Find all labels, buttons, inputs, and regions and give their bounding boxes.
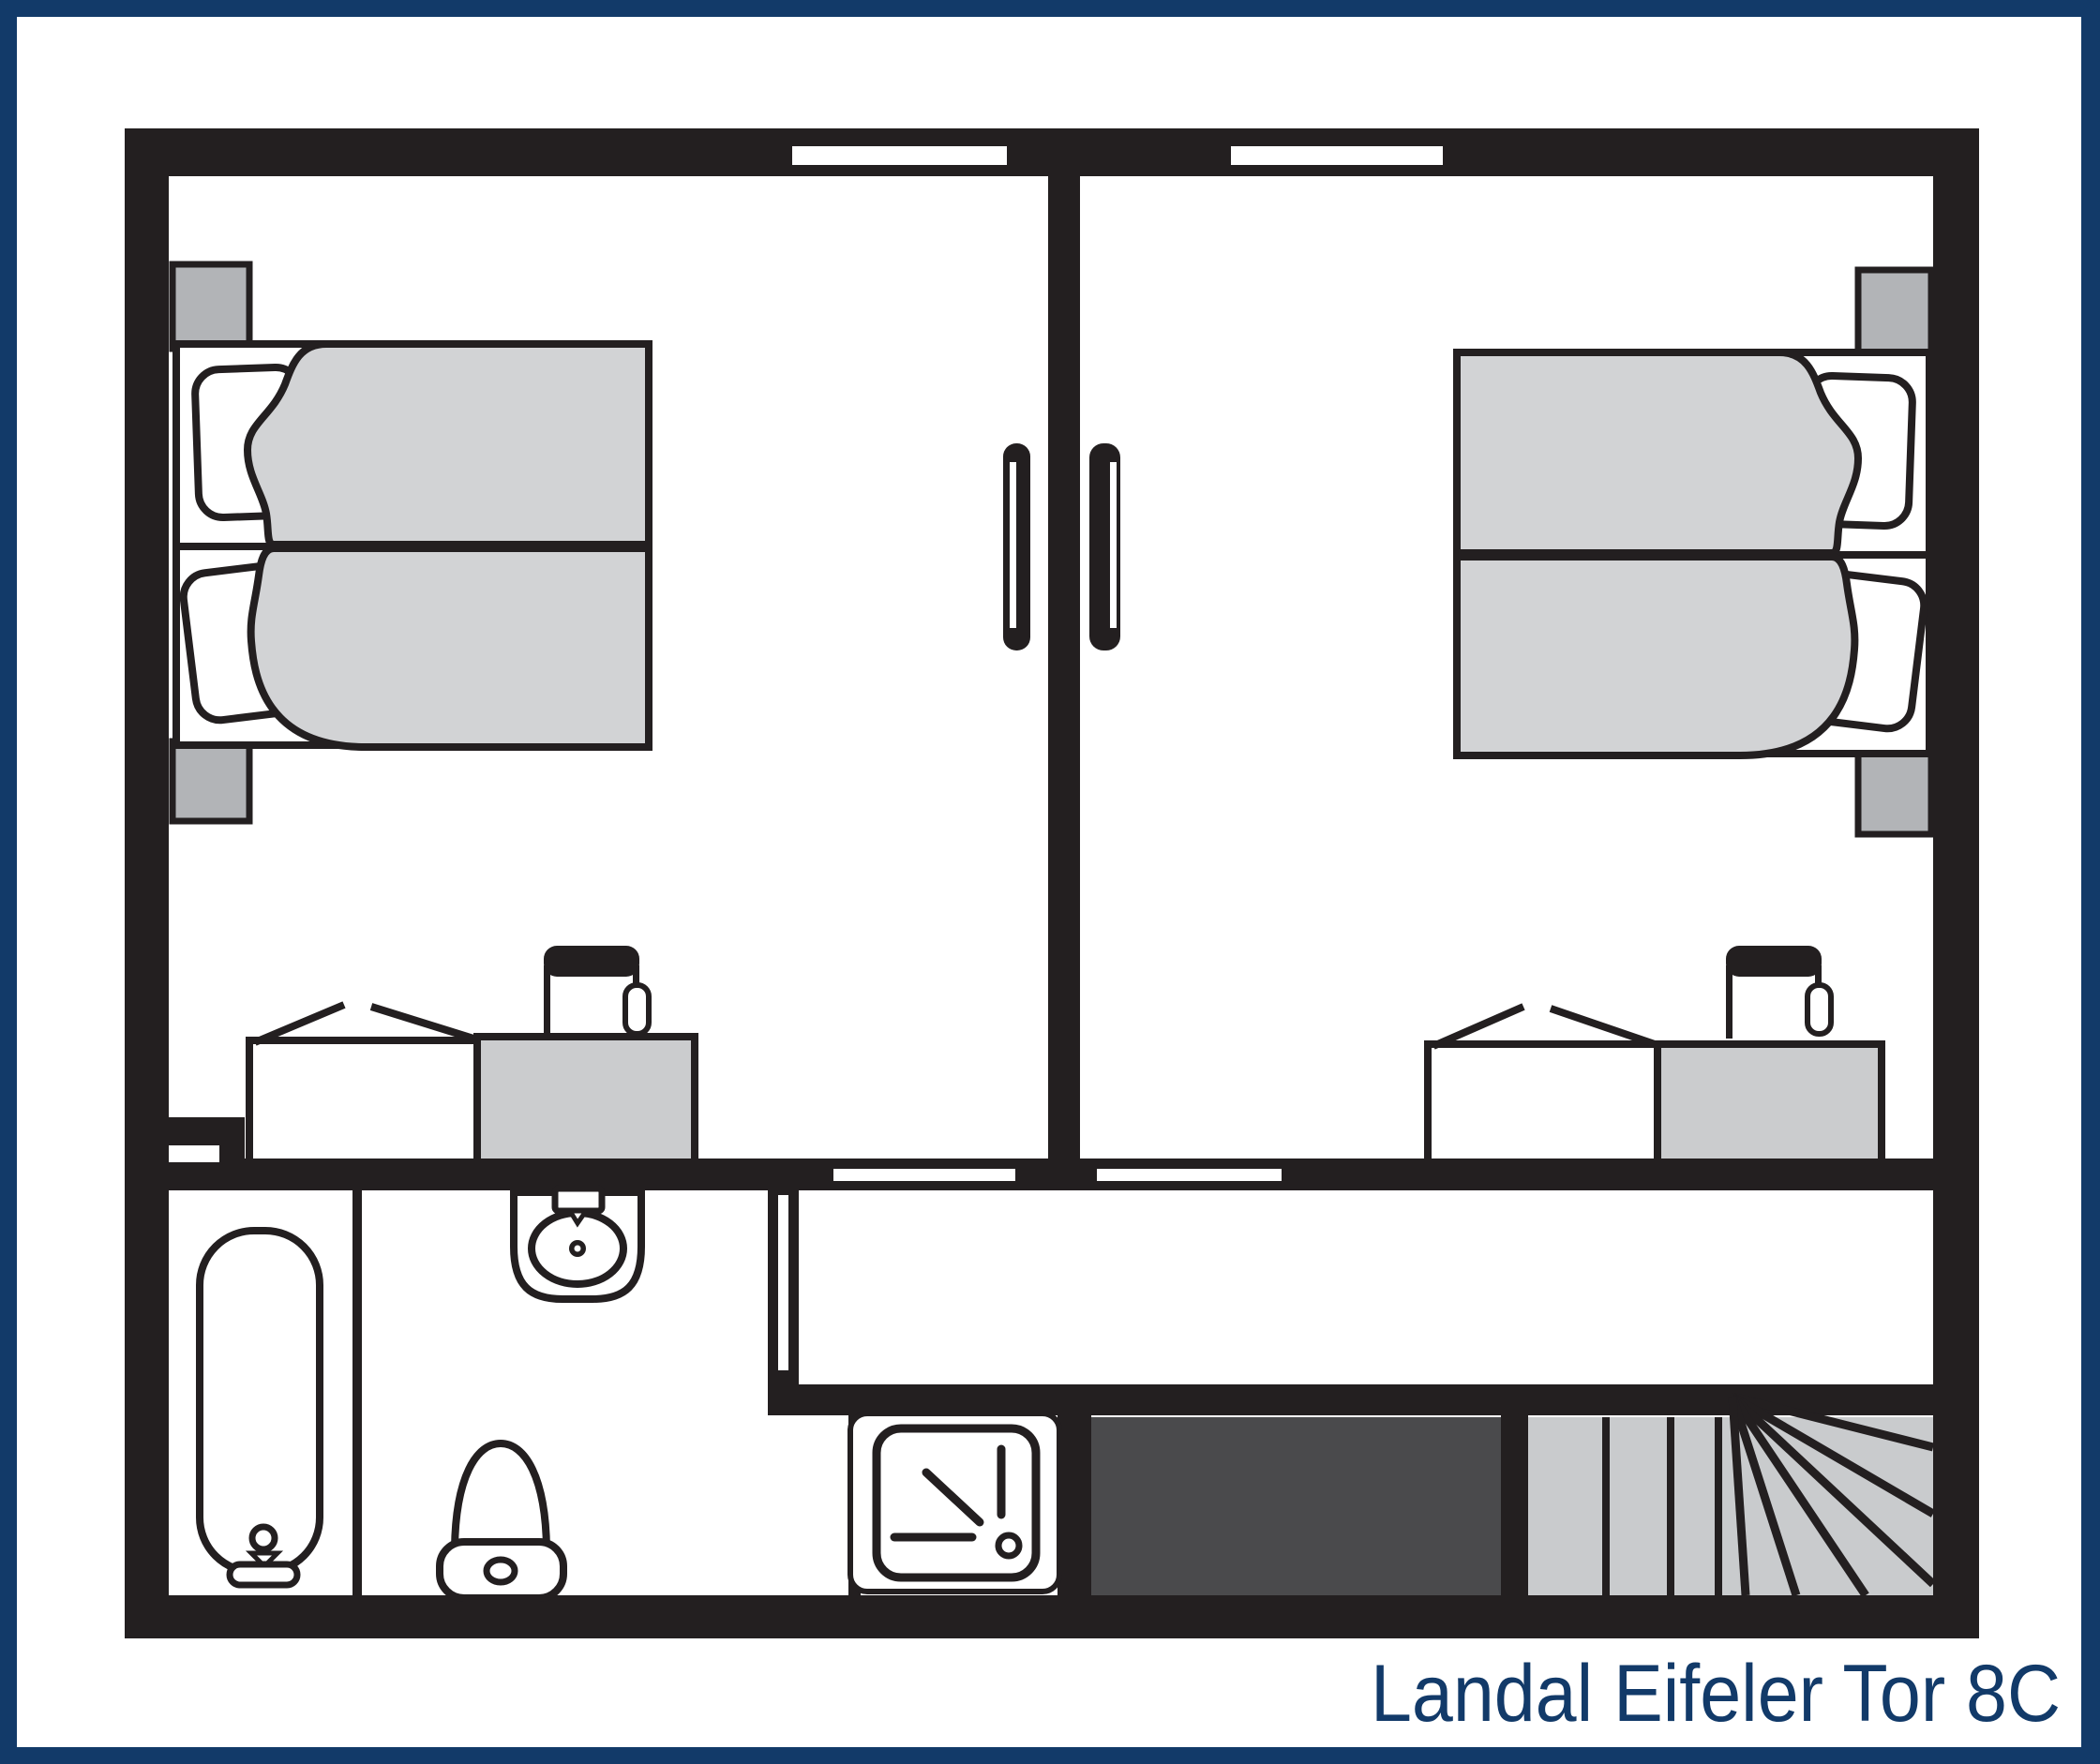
svg-text:Landal Eifeler Tor 8C: Landal Eifeler Tor 8C [1371,1649,2061,1739]
